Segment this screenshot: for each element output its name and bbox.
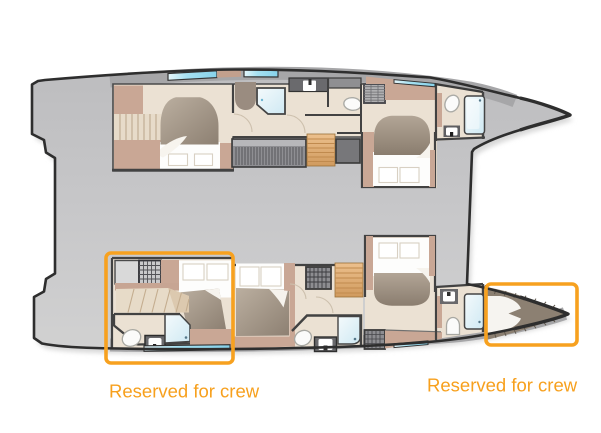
svg-text:Reserved for crew: Reserved for crew [427, 375, 578, 396]
svg-text:Reserved for crew: Reserved for crew [109, 381, 260, 402]
